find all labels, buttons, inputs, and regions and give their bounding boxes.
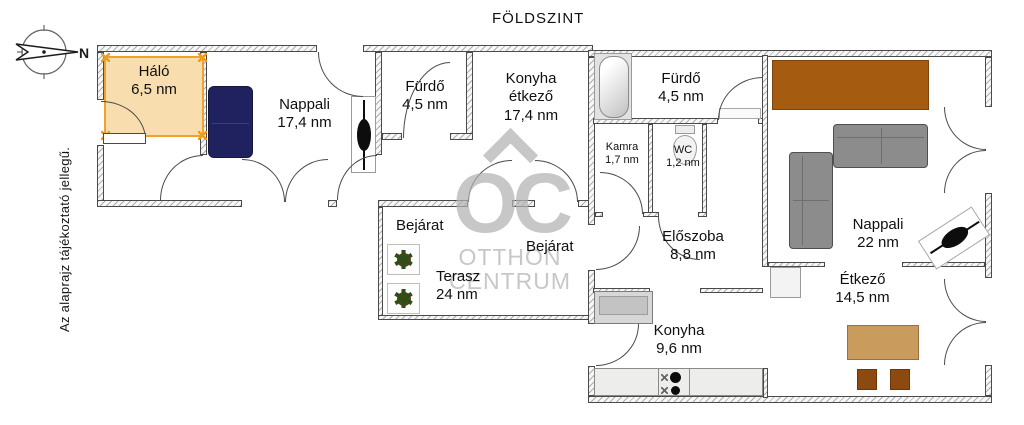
compass-north-label: N (79, 45, 89, 61)
wall (97, 145, 104, 207)
wall (700, 288, 763, 293)
room-area: 9,6 nm (634, 340, 724, 358)
room-area: 14,5 nm (810, 289, 915, 307)
room-label-halo: Háló 6,5 nm (104, 63, 204, 100)
counter-divider (689, 369, 690, 395)
wall (328, 200, 337, 207)
room-label-kamra: Kamra 1,7 nm (598, 141, 646, 168)
highlight-corner-mark (198, 53, 207, 62)
room-label-konyha: Konyha 9,6 nm (634, 322, 724, 359)
room-label-furdo1: Fürdő 4,5 nm (386, 78, 464, 115)
counter-divider (658, 369, 659, 395)
terrace-wall (378, 207, 383, 320)
stove-burner-icon (671, 386, 680, 395)
sofa-gray-horizontal (833, 124, 928, 168)
room-area: 17,4 nm (477, 107, 585, 125)
door-arc-konyha-back (596, 324, 639, 366)
disclaimer-text: Az alaprajz tájékoztató jellegű. (57, 80, 76, 332)
room-label-terasz: Terasz 24 nm (436, 268, 502, 305)
room-area: 1,7 nm (598, 154, 646, 167)
room-area: 1,2 nm (661, 157, 705, 170)
wall (97, 200, 242, 207)
entrance-label: Bejárat (396, 217, 444, 234)
room-name: Nappali (252, 96, 357, 114)
room-label-nappali1: Nappali 17,4 nm (252, 96, 357, 133)
door-arc-nappali-top (318, 52, 363, 97)
room-name: Konyha (634, 322, 724, 340)
wall (985, 57, 992, 107)
door-leaf-halo (103, 133, 146, 144)
sofa-cushion-line (793, 200, 829, 201)
plant-leaf (357, 119, 371, 151)
sofa-gray-vertical (789, 152, 833, 249)
room-label-wc: WC 1,2 nm (661, 144, 705, 171)
wall (97, 45, 317, 52)
sofa-back-line (802, 156, 803, 245)
wall (588, 50, 992, 57)
room-name: Nappali (828, 216, 928, 234)
room-name: Étkező (810, 271, 915, 289)
stove-mark-icon (661, 387, 668, 394)
door-arc-nappali2-upper (944, 107, 986, 150)
entrance-label: Bejárat (526, 238, 574, 255)
toilet-tank (675, 125, 695, 134)
highlight-corner-mark (101, 53, 110, 62)
room-label-etkezo: Étkező 14,5 nm (810, 271, 915, 308)
room-label-furdo2: Fürdő 4,5 nm (636, 70, 726, 107)
plant-leaves: ✱ (393, 247, 415, 273)
room-name: Konyha (477, 70, 585, 88)
wall (648, 124, 653, 214)
terrace-plant-icon: ✱ (387, 283, 420, 314)
chair (890, 369, 910, 390)
room-area: 8,8 nm (644, 246, 742, 264)
room-label-konyha-etkezo: Konyha étkező 17,4 nm (477, 70, 585, 125)
bathtub-icon (594, 53, 632, 120)
room-label-nappali2: Nappali 22 nm (828, 216, 928, 253)
room-area: 17,4 nm (252, 114, 357, 132)
sink-basin (599, 296, 648, 315)
wall (363, 45, 593, 52)
room-name: Terasz (436, 268, 502, 286)
cabinet-white (770, 267, 801, 298)
dining-table (847, 325, 919, 360)
room-area: 4,5 nm (386, 96, 464, 114)
door-arc-nappali-double-left (242, 159, 285, 202)
highlight-corner-mark (198, 131, 207, 140)
room-area: 4,5 nm (636, 88, 726, 106)
bathtub-basin (599, 56, 629, 118)
room-label-eloszoba: Előszoba 8,8 nm (644, 228, 742, 265)
kitchen-counter-bottom (594, 368, 763, 396)
plant-leaves: ✱ (393, 286, 415, 312)
room-name: Kamra (598, 141, 646, 154)
wall (985, 365, 992, 396)
sofa-navy (208, 86, 253, 158)
wall (643, 212, 659, 217)
room-name: Fürdő (386, 78, 464, 96)
wall (588, 396, 992, 403)
door-arc-nappali-double-right (285, 159, 328, 202)
door-arc-nappali-konyha (337, 155, 377, 200)
floor-plan-canvas: FÖLDSZINT Az alaprajz tájékoztató jelleg… (0, 0, 1024, 425)
room-name: étkező (477, 88, 585, 106)
door-arc-etkezo-lower (944, 322, 986, 365)
stove-mark-icon (661, 374, 668, 381)
wall (375, 52, 382, 155)
room-name: Fürdő (636, 70, 726, 88)
chair (857, 369, 877, 390)
door-arc-halo-nappali (160, 155, 203, 200)
sofa-back-line (837, 137, 924, 138)
room-area: 22 nm (828, 234, 928, 252)
room-name: Előszoba (644, 228, 742, 246)
compass-icon: N (8, 24, 96, 82)
sofa-cushion-line (881, 128, 882, 164)
door-arc-kamra (600, 172, 643, 214)
kitchen-counter-left (594, 291, 653, 324)
terrace-wall (378, 315, 593, 320)
wall (466, 52, 473, 140)
wall (763, 368, 768, 398)
door-arc-nappali2-lower (944, 150, 986, 193)
sofa-cushion-line (212, 123, 249, 124)
room-name: WC (661, 144, 705, 157)
room-area: 6,5 nm (104, 81, 204, 99)
plant-box-diagonal-icon (918, 206, 990, 269)
wall (382, 133, 402, 140)
door-arc-etkezo-upper (944, 279, 986, 322)
room-name: Háló (104, 63, 204, 81)
page-title: FÖLDSZINT (492, 10, 584, 27)
stove-burner-icon (670, 372, 681, 383)
room-area: 24 nm (436, 286, 502, 304)
door-arc-bejarat (596, 226, 640, 270)
wardrobe-brown (772, 60, 929, 110)
terrace-plant-icon: ✱ (387, 244, 420, 275)
